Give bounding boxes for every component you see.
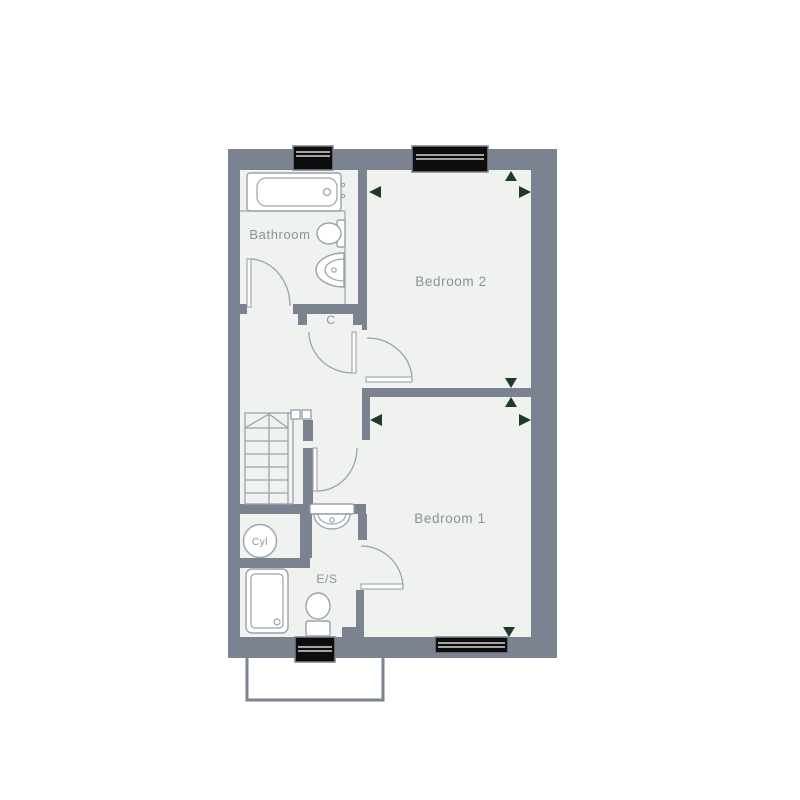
floorplan-drawing: Bathroom Bedroom 2 Bedroom 1 C Cyl E/S — [0, 0, 800, 800]
bathroom-label: Bathroom — [249, 227, 310, 242]
wall-footing — [342, 627, 363, 637]
wall-cylinder-bottom — [240, 558, 310, 568]
bedroom1-window — [435, 637, 508, 653]
bathroom-window — [293, 146, 333, 170]
jamb — [353, 325, 362, 331]
floorplan-canvas: Bathroom Bedroom 2 Bedroom 1 C Cyl E/S — [0, 0, 800, 800]
newel-post — [291, 410, 300, 419]
bedroom2-window — [412, 146, 488, 172]
wall-left — [228, 149, 240, 658]
porch-outline — [247, 658, 383, 700]
cylinder-label: Cyl — [252, 537, 268, 548]
ensuite-toilet — [306, 593, 330, 636]
wall-stairs-right — [303, 420, 313, 505]
newel-post — [302, 410, 311, 419]
jamb — [302, 441, 314, 448]
wall-top — [228, 149, 557, 170]
bathtub — [247, 173, 345, 211]
cupboard-label: C — [326, 313, 335, 327]
wall-right — [531, 149, 557, 658]
jamb — [361, 440, 371, 448]
bedroom2-label: Bedroom 2 — [415, 274, 486, 289]
ensuite-label: E/S — [316, 572, 337, 586]
jamb — [298, 325, 307, 331]
bedroom1-label: Bedroom 1 — [414, 511, 485, 526]
ensuite-window — [295, 637, 335, 662]
jamb — [357, 330, 368, 338]
wall-cylinder-right — [300, 514, 312, 558]
wall-bedroom-divider — [362, 388, 531, 397]
wall-bathroom-bedroom2 — [358, 170, 367, 338]
shower-tray — [246, 569, 288, 633]
wall-bathroom-bottom — [290, 304, 358, 314]
